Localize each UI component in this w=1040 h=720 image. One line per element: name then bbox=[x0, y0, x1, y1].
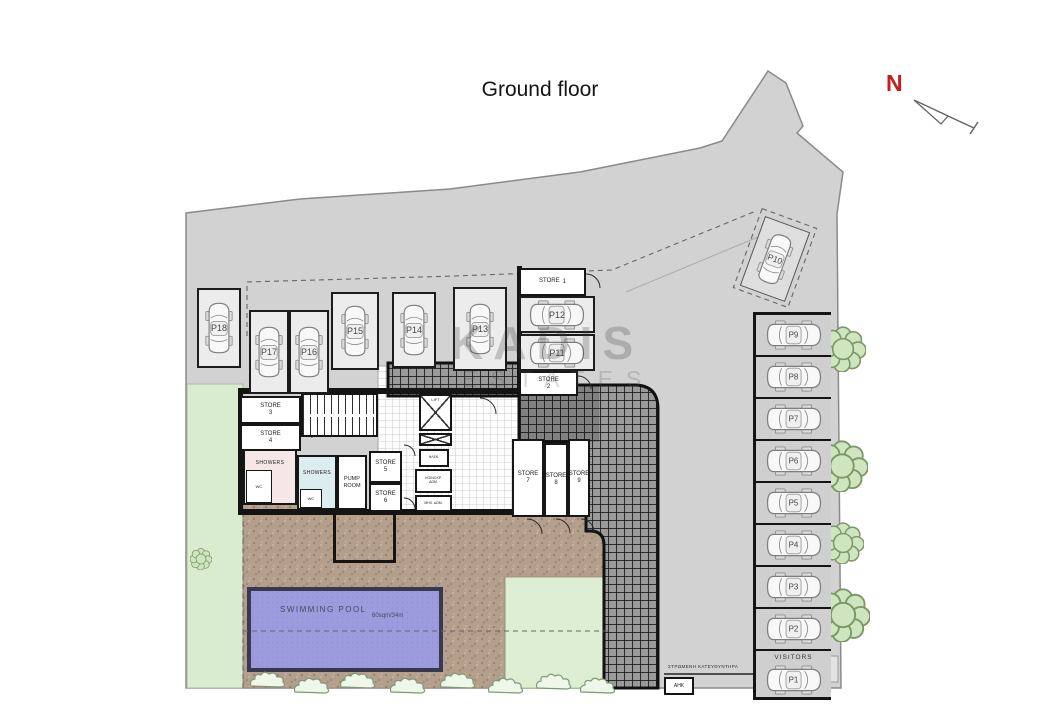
parking-spot-p11: P11 bbox=[519, 334, 595, 371]
parking-column-right: P9 P8 P7 P6 P5 P4 P3 P2 VISITO bbox=[753, 312, 831, 700]
parking-label-p17: P17 bbox=[251, 347, 287, 357]
parking-spot-p6: P6 bbox=[756, 441, 831, 483]
room-pump: PUMP ROOM bbox=[337, 455, 367, 510]
green-strip-left bbox=[187, 384, 243, 688]
garden-area bbox=[505, 577, 613, 688]
parking-label-p4: P4 bbox=[756, 541, 831, 550]
room-store-1: STORE 1 bbox=[519, 268, 586, 296]
room-store-7: STORE 7 bbox=[512, 439, 544, 517]
visitors-label: VISITORS bbox=[756, 651, 831, 663]
north-label: N bbox=[886, 70, 903, 97]
stair-rail bbox=[305, 414, 374, 417]
parking-label-p8: P8 bbox=[756, 373, 831, 382]
parking-spot-p7: P7 bbox=[756, 399, 831, 441]
parking-label-p5: P5 bbox=[756, 499, 831, 508]
parking-label-p11: P11 bbox=[521, 348, 593, 358]
room-store-9: STORE 9 bbox=[568, 439, 590, 517]
parking-spot-p16: P16 bbox=[289, 310, 329, 394]
parking-spot-p8: P8 bbox=[756, 357, 831, 399]
parking-spot-p3: P3 bbox=[756, 567, 831, 609]
parking-label-p14: P14 bbox=[394, 325, 434, 335]
paved-direction-note: ΣΤΡΩΜΕΝΗ ΚΑΤΕΥΘΥΝΤΗΡΑ bbox=[668, 664, 738, 669]
parking-spot-p5: P5 bbox=[756, 483, 831, 525]
pool-area-label: 60sqm/34m bbox=[372, 613, 403, 619]
pool-name-label: SWIMMING POOL bbox=[280, 605, 367, 614]
lift-pit bbox=[419, 433, 452, 446]
parking-spot-p14: P14 bbox=[392, 292, 436, 368]
room-store-4: STORE 4 bbox=[240, 424, 301, 451]
parking-spot-p13: P13 bbox=[453, 287, 507, 371]
parking-label-p16: P16 bbox=[291, 347, 327, 357]
staircase bbox=[301, 393, 378, 437]
site-plan: Ground floor N KADIS ESTATES STORE 1 STO… bbox=[0, 0, 1040, 720]
swimming-pool bbox=[249, 589, 441, 670]
room-store-2: STORE 2 bbox=[519, 371, 578, 396]
parking-label-p7: P7 bbox=[756, 415, 831, 424]
parking-spot-p9: P9 bbox=[756, 315, 831, 357]
room-store-5: STORE 5 bbox=[369, 451, 402, 483]
parking-spot-p15: P15 bbox=[331, 292, 379, 370]
parking-label-p1: P1 bbox=[756, 676, 831, 685]
parking-label-p6: P6 bbox=[756, 457, 831, 466]
page-title: Ground floor bbox=[400, 78, 680, 102]
parking-spot-p12: P12 bbox=[519, 296, 595, 333]
north-arrow-icon bbox=[914, 100, 978, 134]
canopy-outline bbox=[333, 511, 396, 563]
parking-label-p18: P18 bbox=[199, 323, 239, 333]
parking-label-p3: P3 bbox=[756, 583, 831, 592]
room-wc-a: WC bbox=[246, 470, 272, 503]
parking-label-p12: P12 bbox=[521, 310, 593, 320]
room-utility-b: ΚΟΙΝΟΧΡ. ΔΩΜ. bbox=[415, 469, 452, 493]
room-utility-c: ΜΗΧ. ΔΩΜ. bbox=[415, 495, 452, 512]
parking-label-p2: P2 bbox=[756, 625, 831, 634]
room-store-3: STORE 3 bbox=[240, 396, 301, 424]
parking-spot-p4: P4 bbox=[756, 525, 831, 567]
room-store-6: STORE 6 bbox=[369, 483, 402, 512]
parking-spot-p18: P18 bbox=[197, 288, 241, 368]
room-utility-a: ΗΛΕΚ. bbox=[419, 449, 449, 467]
parking-spot-p1: P1 bbox=[756, 663, 831, 697]
parking-label-p15: P15 bbox=[333, 326, 377, 336]
parking-spot-p2: P2 bbox=[756, 609, 831, 651]
parking-label-p9: P9 bbox=[756, 331, 831, 340]
substation-label: ΑΗΚ bbox=[674, 683, 684, 689]
lift: LIFT bbox=[419, 394, 452, 431]
room-wc-b: WC bbox=[300, 489, 322, 508]
electricity-substation-box: ΑΗΚ bbox=[664, 677, 694, 695]
room-store-8: STORE 8 bbox=[544, 443, 568, 517]
parking-label-p13: P13 bbox=[455, 324, 505, 334]
parking-spot-p17: P17 bbox=[249, 310, 289, 394]
